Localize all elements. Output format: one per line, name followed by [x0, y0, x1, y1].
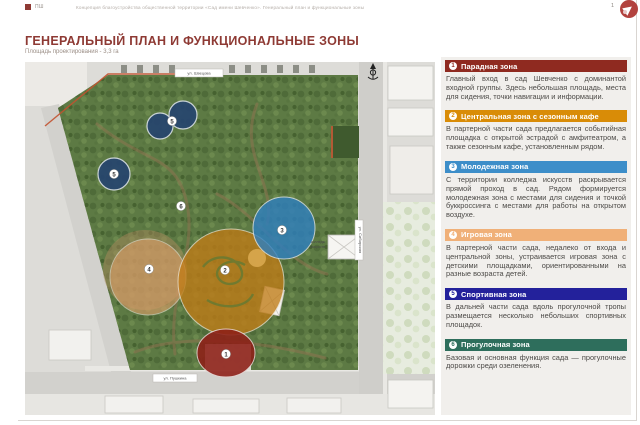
- brand-logo-icon: [25, 4, 31, 10]
- college-label: колледж искусств: [311, 240, 326, 249]
- zone-header: 4 Игровая зона: [445, 229, 627, 241]
- hedge-edge: [331, 126, 333, 158]
- zone-number-badge: 4: [449, 231, 457, 239]
- brand-mark: ПШ: [35, 4, 44, 10]
- zone-name: Прогулочная зона: [461, 340, 530, 349]
- zone-description: С территории колледжа искусств раскрывае…: [446, 176, 626, 220]
- hedge-block: [333, 126, 359, 158]
- zone-header: 1 Парадная зона: [445, 60, 627, 72]
- map-marker-progulochnaya: 6: [176, 201, 185, 210]
- logo-dot-icon: [623, 10, 627, 14]
- page-number: 1: [611, 3, 614, 9]
- zone-header: 3 Молодежная зона: [445, 161, 627, 173]
- map-marker-igrovaya: 4: [144, 264, 153, 273]
- zone-name: Центральная зона с сезонным кафе: [461, 112, 599, 121]
- legend-zone-paradnaya: 1 Парадная зона Главный вход в сад Шевче…: [445, 60, 627, 101]
- corner-logo-icon: [620, 0, 638, 18]
- zone-header: 2 Центральная зона с сезонным кафе: [445, 110, 627, 122]
- zone-description: Базовая и основная функция сада — прогул…: [446, 354, 626, 372]
- svg-text:колледж: колледж: [311, 240, 326, 244]
- zone-header: 5 Спортивная зона: [445, 288, 627, 300]
- page-subtitle: Площадь проектирования - 3,3 га: [25, 49, 119, 55]
- legend-zone-sportivnaya: 5 Спортивная зона В дальней части сада в…: [445, 288, 627, 329]
- zone-name: Спортивная зона: [461, 290, 526, 299]
- zone-description: Главный вход в сад Шевченко с доминантой…: [446, 75, 626, 101]
- street-label-right: ул. Сибирская: [355, 220, 363, 260]
- street-label-top: ул. Швецова: [175, 69, 223, 77]
- map-marker-paradnaya: 1: [221, 349, 230, 358]
- map-marker-molodezhnaya: 3: [277, 225, 286, 234]
- zone-number-badge: 3: [449, 163, 457, 171]
- legend-zone-igrovaya: 4 Игровая зона В партерной части сада, н…: [445, 229, 627, 279]
- page-edge-bottom: [18, 420, 636, 421]
- green-verge-east-texture: [383, 202, 435, 374]
- masterplan-map: 1 2 3 4 5 5 6 ул. Швецова: [25, 62, 435, 415]
- zone-header: 6 Прогулочная зона: [445, 339, 627, 351]
- page-edge-right: [636, 0, 637, 421]
- legend-zone-centralnaya: 2 Центральная зона с сезонным кафе В пар…: [445, 110, 627, 151]
- map-marker-sport-b: 5: [109, 169, 118, 178]
- document-header: ПШ: [25, 4, 44, 10]
- zone-number-badge: 6: [449, 341, 457, 349]
- zone-number-badge: 1: [449, 62, 457, 70]
- zone-description: В дальней части сада вдоль прогулочной т…: [446, 303, 626, 329]
- document-title-line: Концепция благоустройства общественной т…: [76, 5, 364, 10]
- svg-text:ул. Сибирская: ул. Сибирская: [358, 227, 363, 254]
- page-title: ГЕНЕРАЛЬНЫЙ ПЛАН И ФУНКЦИОНАЛЬНЫЕ ЗОНЫ: [25, 34, 359, 48]
- zone-number-badge: 5: [449, 290, 457, 298]
- zone-name: Молодежная зона: [461, 162, 528, 171]
- map-marker-sport-a: 5: [167, 116, 176, 125]
- zone-name: Игровая зона: [461, 230, 512, 239]
- legend-zone-molodezhnaya: 3 Молодежная зона С территории колледжа …: [445, 161, 627, 220]
- zone-description: В партерной части сада, недалеко от вход…: [446, 244, 626, 279]
- zone-number-badge: 2: [449, 112, 457, 120]
- zone-circle-igrovaya: [110, 239, 186, 315]
- zone-name: Парадная зона: [461, 62, 517, 71]
- zone-description: В партерной части сада предлагается собы…: [446, 125, 626, 151]
- street-label-bottom: ул. Пушкина: [153, 374, 197, 382]
- legend-panel: 1 Парадная зона Главный вход в сад Шевче…: [441, 57, 631, 415]
- map-marker-centralnaya: 2: [220, 265, 229, 274]
- svg-text:ул. Пушкина: ул. Пушкина: [164, 376, 188, 381]
- svg-text:искусств: искусств: [311, 245, 325, 249]
- svg-text:ул. Швецова: ул. Швецова: [187, 71, 211, 76]
- legend-zone-progulochnaya: 6 Прогулочная зона Базовая и основная фу…: [445, 339, 627, 372]
